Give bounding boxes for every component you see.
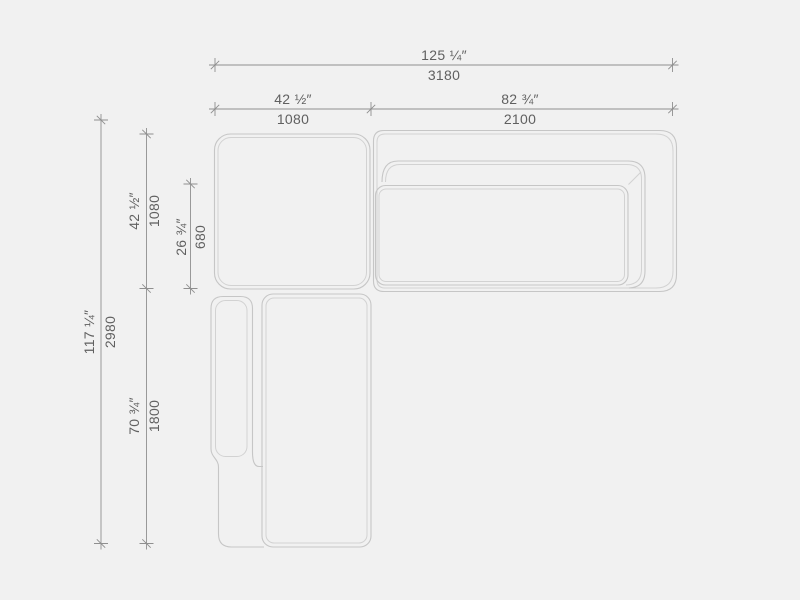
dim-chaise-length-inches: 70 ¾″	[127, 397, 141, 435]
sofa-module-outline	[374, 131, 677, 292]
dim-upper-depth-mm: 1080	[147, 195, 161, 227]
chaise-seat-edge	[262, 294, 371, 547]
dim-overall-width-mm: 3180	[428, 68, 460, 82]
corner-module-cushion-edge	[218, 138, 367, 286]
dim-upper-depth-inches: 42 ½″	[127, 192, 141, 230]
dim-overall-depth-mm: 2980	[103, 316, 117, 348]
sofa-backrest-inner-line	[386, 165, 642, 286]
sofa-backrest-line	[382, 161, 645, 288]
dim-chaise-length-mm: 1800	[147, 400, 161, 432]
sofa-seat-cushion-edge	[376, 186, 629, 286]
sofa-seat-cushion-inner-edge	[379, 189, 625, 282]
sofa-outer-edge	[374, 131, 677, 292]
technical-drawing: 125 ¼″ 3180 42 ½″ 1080 82 ¾″ 2100 117 ¼″…	[0, 0, 800, 600]
dim-seat-depth-mm: 680	[193, 224, 207, 248]
dim-overall-width-inches: 125 ¼″	[421, 48, 467, 62]
dim-section-right-width-inches: 82 ¾″	[501, 92, 539, 106]
corner-module-outer-edge	[215, 134, 371, 289]
dim-overall-depth-inches: 117 ¼″	[82, 310, 96, 355]
chaise-module-outline	[211, 294, 371, 547]
dim-section-left-width-mm: 1080	[277, 112, 309, 126]
dim-section-right-width-mm: 2100	[504, 112, 536, 126]
dim-seat-depth-inches: 26 ¾″	[174, 218, 188, 256]
sofa-corner-miter-line	[629, 172, 642, 185]
chaise-backrest-and-base-edge	[211, 297, 264, 548]
sofa-plan-svg	[0, 0, 800, 600]
corner-module-outline	[215, 134, 371, 289]
dim-section-left-width-inches: 42 ½″	[274, 92, 312, 106]
chaise-seat-inner-edge	[266, 298, 367, 543]
sofa-inner-edge	[377, 134, 673, 288]
chaise-backrest-cushion-edge	[216, 301, 248, 457]
